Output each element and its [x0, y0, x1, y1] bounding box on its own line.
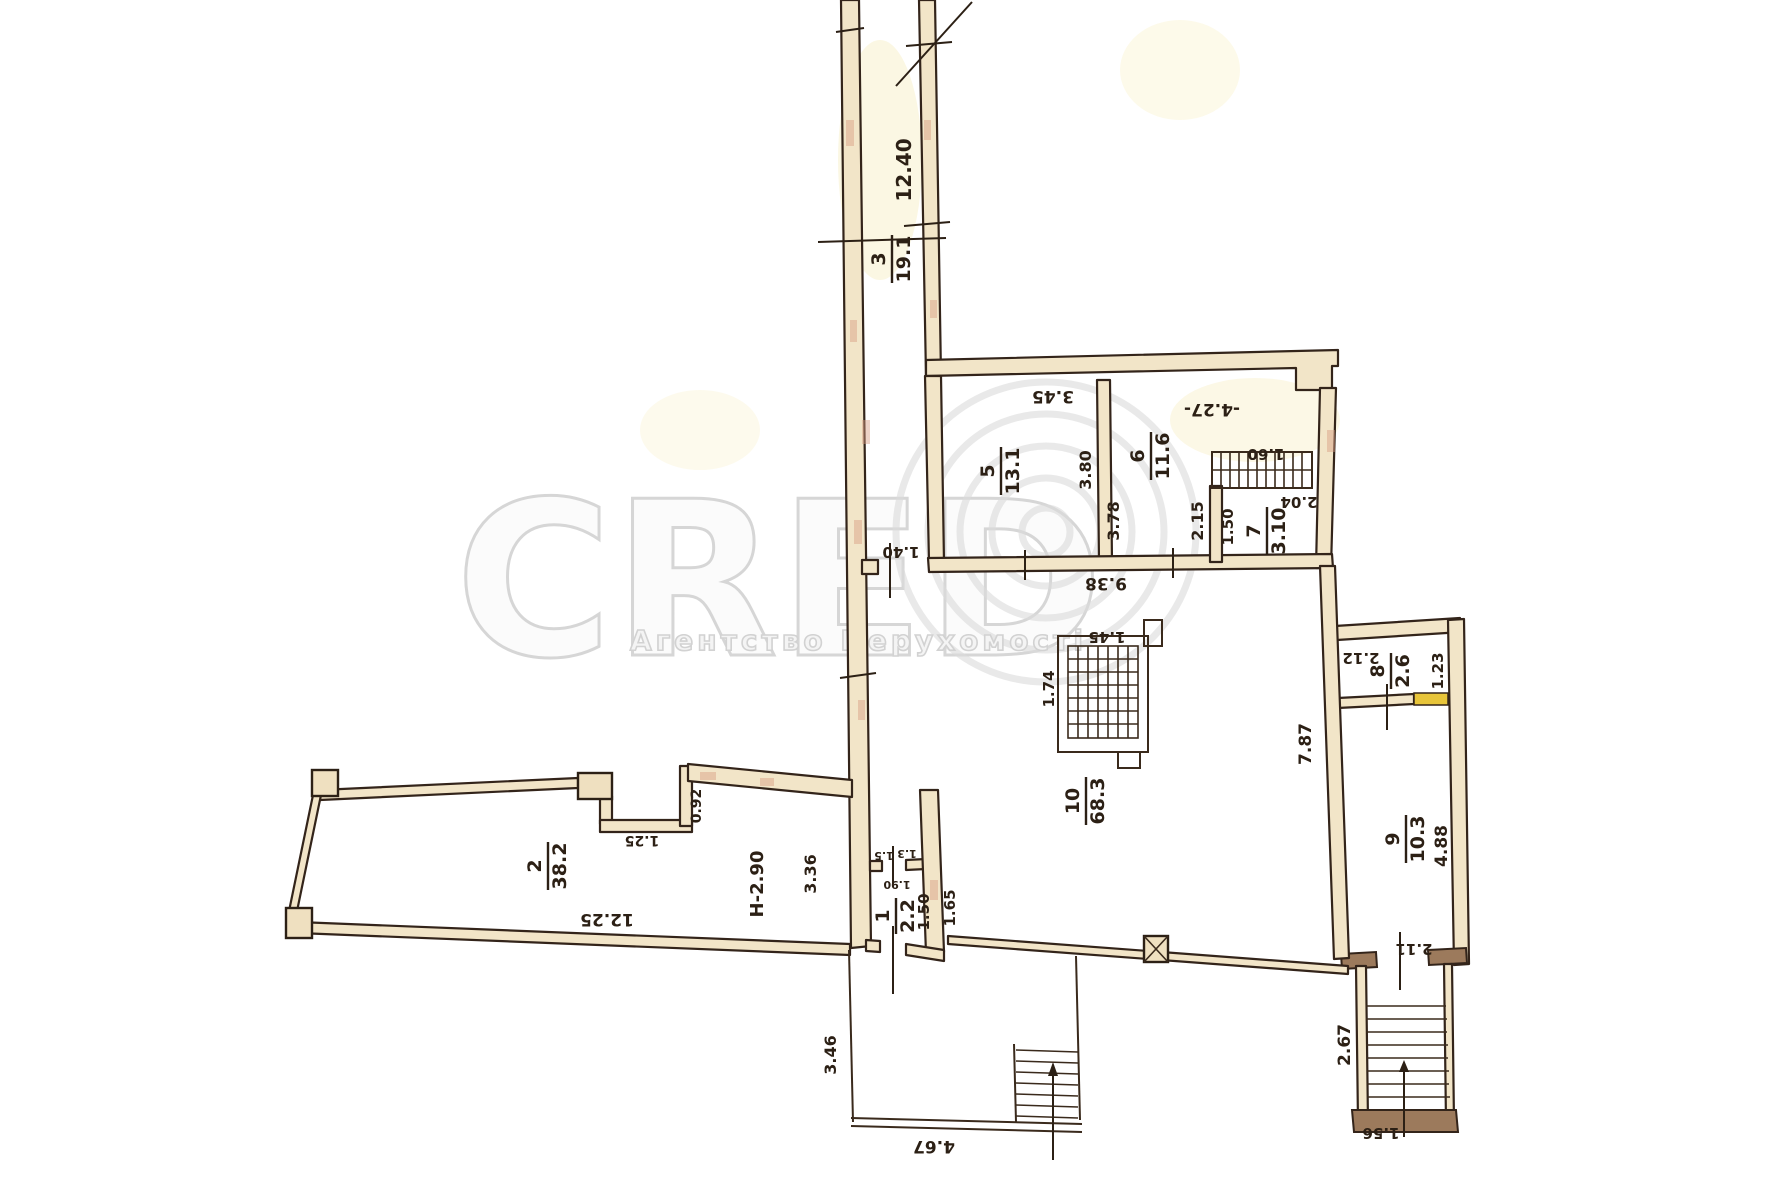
dim-label-2.11: 2.11	[1395, 940, 1432, 958]
dim-label-3.46: 3.46	[821, 1035, 840, 1074]
dim-label-1.25: 1.25	[625, 832, 660, 848]
dim-label-2.67: 2.67	[1335, 1024, 1355, 1066]
wall-topblock-right	[1316, 388, 1336, 568]
wall-stairs-right-right	[1444, 964, 1454, 1122]
dim-label--4.27-: -4.27-	[1184, 399, 1240, 419]
dim-label-3.78: 3.78	[1104, 501, 1123, 540]
dim-label-1.5: 1.5	[874, 849, 894, 862]
porch-stairs	[1014, 1044, 1078, 1160]
room-number: 1	[872, 909, 894, 922]
pillar-room2-topright	[578, 773, 612, 799]
watermark: CRED Агентство Нерухомості	[455, 382, 1196, 706]
dim-label-3.36: 3.36	[801, 854, 820, 893]
wall-room8-room9	[1338, 694, 1414, 708]
room-area: 10.3	[1407, 816, 1429, 863]
room-area: 3.10	[1268, 508, 1290, 555]
wall-938-main	[928, 554, 1333, 572]
wall-notch-bottom	[600, 820, 692, 832]
room-label-1: 12.2	[872, 898, 919, 934]
dim-label-3.80: 3.80	[1076, 450, 1095, 489]
room-label-6: 611.6	[1127, 432, 1174, 480]
wall-block89-right	[1448, 619, 1469, 965]
room-area: 19.1	[893, 236, 915, 283]
wall-room9-bottom-right	[1428, 948, 1467, 965]
room-label-2: 238.2	[524, 842, 571, 890]
room-label-7: 73.10	[1243, 507, 1290, 555]
floor-plan-canvas: CRED Агентство Нерухомості	[0, 0, 1772, 1181]
room-area: 68.3	[1087, 778, 1109, 825]
wall-room2-top	[320, 778, 578, 800]
dim-label-1.3: 1.3	[897, 847, 917, 860]
dim-label-1.90: 1.90	[883, 878, 910, 891]
dim-label-1.50: 1.50	[915, 893, 933, 930]
wall-block89-top	[1335, 618, 1462, 640]
room-number: 9	[1382, 832, 1404, 845]
dim-label-9.38: 9.38	[1085, 573, 1127, 593]
room-area: 11.6	[1152, 433, 1174, 480]
dim-label-1.65: 1.65	[941, 889, 959, 926]
dim-label-2.15: 2.15	[1188, 501, 1207, 540]
dim-label-12.25: 12.25	[580, 909, 634, 929]
dim-label-1.40: 1.40	[882, 543, 919, 561]
room-number: 10	[1062, 788, 1084, 814]
room-area: 13.1	[1002, 448, 1024, 495]
dim-label-1.60: 1.60	[1247, 445, 1284, 463]
pillar-room2-bottomleft	[286, 908, 312, 938]
room-number: 7	[1243, 524, 1265, 537]
room-number: 6	[1127, 449, 1149, 462]
wall-room2-left	[288, 795, 321, 916]
room-label-10: 1068.3	[1062, 777, 1109, 825]
wall-stairs-right-left	[1356, 966, 1368, 1122]
pillar-room2-topleft	[312, 770, 338, 796]
wall-room1-bottom-left	[866, 940, 880, 952]
pillar-room10-bottom	[1144, 936, 1168, 962]
room-number: 3	[868, 252, 890, 265]
dim-label-12.40: 12.40	[892, 138, 916, 201]
dim-label-4.67: 4.67	[913, 1136, 955, 1156]
floor-plan-page: CRED Агентство Нерухомості	[0, 0, 1772, 1181]
dim-label-0.92: 0.92	[689, 789, 705, 824]
dim-label-1.45: 1.45	[1088, 628, 1125, 646]
room-area: 38.2	[549, 843, 571, 890]
dim-label-1.23: 1.23	[1429, 652, 1447, 689]
stairs-up-arrow	[1399, 1060, 1409, 1072]
dim-label-2.04: 2.04	[1280, 493, 1317, 511]
wall-938-stub	[862, 560, 878, 574]
stairs-up-arrow	[1048, 1062, 1058, 1076]
dim-label-3.45: 3.45	[1032, 386, 1074, 406]
room-area: 2.6	[1392, 654, 1414, 688]
room-number: 5	[977, 464, 999, 477]
room-label-9: 910.3	[1382, 815, 1429, 863]
wall-room5-left	[925, 376, 944, 562]
dim-label-1.74: 1.74	[1040, 670, 1058, 707]
door-room8	[1414, 693, 1448, 705]
dim-label-4.88: 4.88	[1432, 825, 1452, 867]
porch-outline	[849, 950, 1082, 1160]
dim-label-2.12: 2.12	[1342, 649, 1379, 667]
dim-label-1.56: 1.56	[1362, 1124, 1399, 1142]
wall-room2-bottom	[298, 922, 850, 955]
room-number: 2	[524, 859, 546, 872]
dim-label-7.87: 7.87	[1296, 723, 1316, 765]
dim-label-1.50: 1.50	[1219, 508, 1237, 545]
dim-label-H-2.90: H-2.90	[747, 851, 768, 918]
